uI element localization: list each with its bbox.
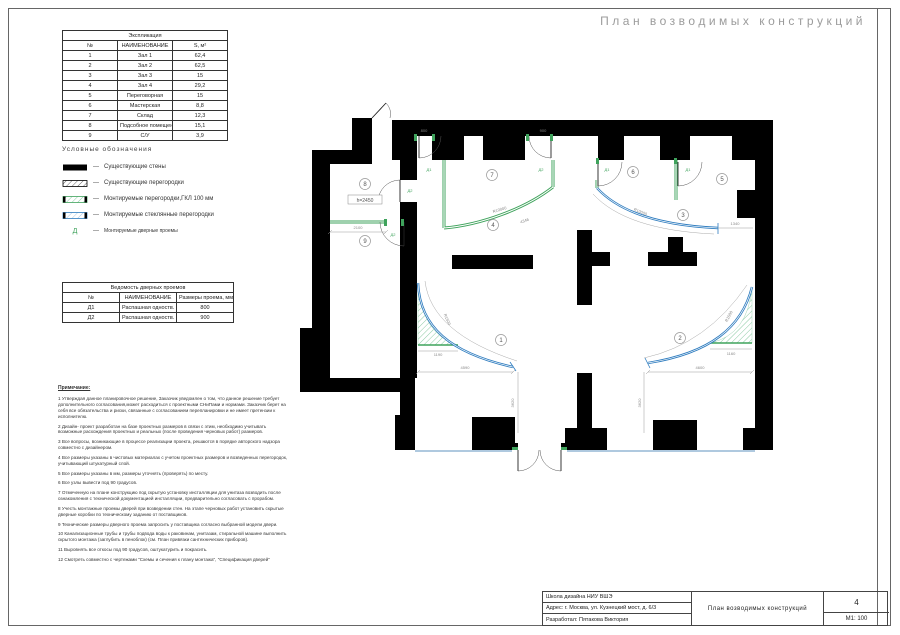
legend-item-existing-walls: — Существующие стены bbox=[62, 159, 214, 175]
svg-text:4346: 4346 bbox=[519, 217, 530, 225]
bearing-walls bbox=[300, 118, 773, 450]
sheet-number: 4 bbox=[824, 592, 889, 613]
table-row: 1Зал 162,4 bbox=[63, 51, 228, 61]
note-item: 2 Дизайн- проект разработан на базе прое… bbox=[58, 424, 290, 436]
note-item: 9 Технические размеры дверного проема за… bbox=[58, 522, 290, 528]
note-item: 1 Утверждая данное планировочное решение… bbox=[58, 396, 290, 419]
svg-text:1190: 1190 bbox=[434, 352, 443, 357]
door-table-title: Ведомость дверных проемов bbox=[63, 283, 234, 293]
note-item: 4 Все размеры указаны в чистовых материа… bbox=[58, 455, 290, 467]
wall-niche bbox=[330, 325, 338, 361]
table-row: Д1Распашная одноств.800 bbox=[63, 303, 234, 313]
legend-label: Монтируемые стеклянные перегородки bbox=[104, 212, 214, 218]
table-row: 6Мастерская8,8 bbox=[63, 101, 228, 111]
svg-text:1340: 1340 bbox=[731, 221, 741, 226]
table-row: 8Подсобное помещение15,1 bbox=[63, 121, 228, 131]
legend: Условные обозначения — Существующие стен… bbox=[62, 146, 214, 239]
col-header-area: S, м² bbox=[173, 41, 228, 51]
svg-text:Д1: Д1 bbox=[605, 167, 611, 172]
room-label-5: 5 bbox=[717, 174, 728, 185]
col-header-name: НАИМЕНОВАНИЕ bbox=[118, 41, 173, 51]
svg-text:1160: 1160 bbox=[727, 351, 736, 356]
room-label-6: 6 bbox=[628, 167, 639, 178]
note-item: 10 Канализационные трубы и трубы подвода… bbox=[58, 531, 290, 543]
legend-title: Условные обозначения bbox=[62, 146, 214, 153]
room-label-9: 9 bbox=[360, 236, 371, 247]
room-label-2: 2 bbox=[675, 333, 686, 344]
svg-text:2100: 2100 bbox=[354, 225, 364, 230]
note-item: 8 Учесть монтажные проемы дверей при воз… bbox=[58, 506, 290, 518]
table-row: 7Склад12,3 bbox=[63, 111, 228, 121]
room-label-4: 4 bbox=[488, 220, 499, 231]
col-header-num: № bbox=[63, 41, 118, 51]
legend-item-existing-partitions: — Существующие перегородки bbox=[62, 175, 214, 191]
drawing-scale: М1: 100 bbox=[824, 613, 889, 625]
svg-text:R1500: R1500 bbox=[443, 313, 453, 327]
svg-text:Д2: Д2 bbox=[539, 167, 545, 172]
notes-title: Примечание: bbox=[58, 385, 290, 391]
title-block-org: Школа дизайна НИУ ВШЭ bbox=[543, 592, 691, 603]
legend-label: Монтируемые перегородки,ГКЛ 100 мм bbox=[104, 196, 213, 202]
legend-item-glass-partitions: — Монтируемые стеклянные перегородки bbox=[62, 207, 214, 223]
table-row: 3Зал 315 bbox=[63, 71, 228, 81]
room-label-8: 8 bbox=[360, 179, 371, 190]
table-row: 4Зал 429,2 bbox=[63, 81, 228, 91]
note-item: 3 Все вопросы, возникающие в процессе ре… bbox=[58, 439, 290, 451]
explication-table: Экспликация № НАИМЕНОВАНИЕ S, м² 1Зал 16… bbox=[62, 30, 228, 141]
legend-label: Существующие стены bbox=[104, 164, 166, 170]
note-item: 12 Смотреть совместно с чертежами "Схемы… bbox=[58, 557, 290, 563]
existing-wall-swatch bbox=[62, 163, 88, 172]
room-label-1: 1 bbox=[496, 335, 507, 346]
height-mark: h=2450 bbox=[348, 195, 382, 204]
floor-plan: 2100 4590 4600 3620 3620 1190 1160 1340 … bbox=[300, 95, 780, 525]
legend-label: Монтируемые дверные проемы bbox=[104, 228, 178, 234]
svg-text:800: 800 bbox=[421, 128, 428, 133]
svg-text:Д2: Д2 bbox=[408, 188, 414, 193]
door-schedule-table: Ведомость дверных проемов № НАИМЕНОВАНИЕ… bbox=[62, 282, 234, 323]
legend-item-gkl-partitions: — Монтируемые перегородки,ГКЛ 100 мм bbox=[62, 191, 214, 207]
title-block: Школа дизайна НИУ ВШЭ Адрес: г. Москва, … bbox=[542, 591, 888, 626]
svg-text:Д1: Д1 bbox=[427, 167, 433, 172]
table-row: 9С/У3,9 bbox=[63, 131, 228, 141]
page-title: План возводимых конструкций bbox=[600, 14, 866, 28]
room-label-3: 3 bbox=[678, 210, 689, 221]
door-jamb-markers bbox=[384, 134, 677, 450]
door-opening-glyph: Д bbox=[62, 228, 88, 235]
explication-title: Экспликация bbox=[63, 31, 228, 41]
room-label-7: 7 bbox=[487, 170, 498, 181]
title-block-author: Разработал: Пятакова Виктория bbox=[543, 614, 691, 625]
table-row: 2Зал 262,5 bbox=[63, 61, 228, 71]
svg-text:900: 900 bbox=[540, 128, 547, 133]
table-row: 5Переговорная15 bbox=[63, 91, 228, 101]
svg-text:3620: 3620 bbox=[510, 398, 515, 408]
svg-text:R1500: R1500 bbox=[724, 309, 734, 322]
svg-text:Д1: Д1 bbox=[686, 167, 692, 172]
legend-label: Существующие перегородки bbox=[104, 180, 184, 186]
svg-text:3620: 3620 bbox=[637, 398, 642, 408]
notes: Примечание: 1 Утверждая данное планирово… bbox=[58, 385, 290, 567]
gkl-partitions bbox=[330, 160, 676, 228]
glass-partition-swatch bbox=[62, 211, 88, 220]
title-block-drawing-name: План возводимых конструкций bbox=[692, 592, 824, 625]
sheet-frame-inner-line bbox=[877, 8, 878, 626]
table-row: Д2Распашная одноств.900 bbox=[63, 313, 234, 323]
door-marks: Д1 Д2 Д1 Д1 Д2 Д2 bbox=[391, 167, 692, 237]
note-item: 6 Все узлы вывести под 90 градусов. bbox=[58, 480, 290, 486]
existing-partition-swatch bbox=[62, 179, 88, 188]
note-item: 7 Отмеченную на плане конструкцию под ск… bbox=[58, 490, 290, 502]
doors bbox=[372, 103, 702, 471]
svg-text:4600: 4600 bbox=[696, 365, 706, 370]
gkl-partition-swatch bbox=[62, 195, 88, 204]
note-item: 5 Все размеры указаны в мм, размеры уточ… bbox=[58, 471, 290, 477]
title-block-address: Адрес: г. Москва, ул. Кузнецкий мост, д.… bbox=[543, 603, 691, 614]
svg-text:Д2: Д2 bbox=[391, 232, 397, 237]
svg-text:4590: 4590 bbox=[461, 365, 471, 370]
note-item: 11 Выровнять все откосы под 90 градусов,… bbox=[58, 547, 290, 553]
svg-text:h=2450: h=2450 bbox=[357, 198, 374, 204]
legend-item-door-openings: Д — Монтируемые дверные проемы bbox=[62, 223, 214, 239]
